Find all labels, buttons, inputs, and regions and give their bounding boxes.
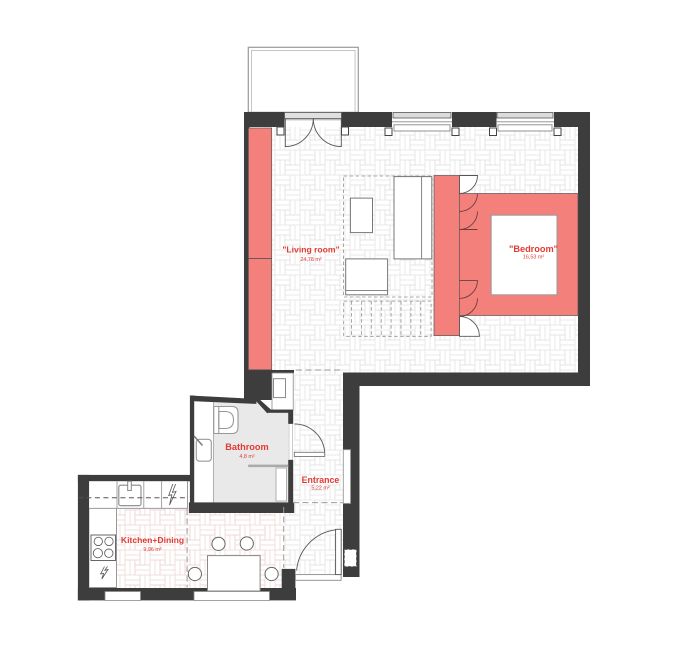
svg-text:4,8 m²: 4,8 m² xyxy=(239,454,254,460)
svg-text:Entrance: Entrance xyxy=(302,475,340,485)
svg-text:Bathroom: Bathroom xyxy=(225,442,268,452)
svg-text:"Bedroom": "Bedroom" xyxy=(509,244,558,254)
svg-text:5,22 m²: 5,22 m² xyxy=(311,485,329,491)
svg-text:16,53 m²: 16,53 m² xyxy=(523,255,544,261)
svg-text:24,78 m²: 24,78 m² xyxy=(300,257,321,263)
svg-text:"Living room": "Living room" xyxy=(282,244,339,254)
svg-text:9,96 m²: 9,96 m² xyxy=(143,547,161,553)
svg-text:Kitchen+Dining: Kitchen+Dining xyxy=(121,535,184,545)
